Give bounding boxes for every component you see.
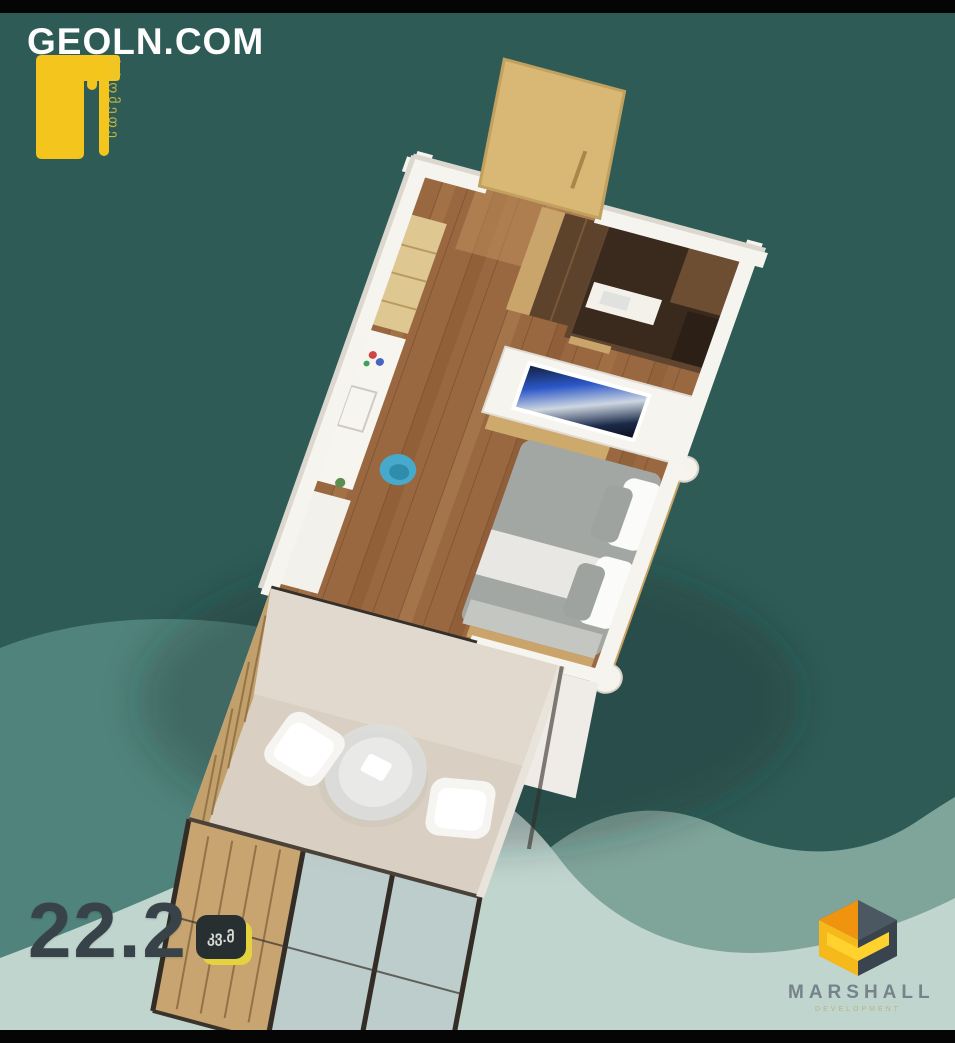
promo-image: GEOLN.COM პრომეთე 22.2 კვ.მ MARSHALL bbox=[0, 0, 955, 1043]
developer-name: MARSHALL bbox=[788, 982, 928, 1004]
developer-tagline: DEVELOPMENT bbox=[788, 1006, 928, 1013]
project-name-vertical-georgian: პრომეთე bbox=[105, 58, 122, 141]
project-logo: პრომეთე bbox=[36, 55, 206, 185]
teal-canvas: GEOLN.COM პრომეთე 22.2 კვ.მ MARSHALL bbox=[0, 13, 955, 1030]
developer-logo-block: MARSHALL DEVELOPMENT bbox=[788, 898, 928, 1013]
balcony-lounge-chair-right bbox=[423, 776, 497, 840]
area-block: 22.2 კვ.მ bbox=[28, 891, 246, 969]
area-unit-label: კვ.მ bbox=[207, 928, 234, 946]
developer-cube-icon bbox=[813, 898, 903, 978]
area-value: 22.2 bbox=[28, 891, 188, 969]
area-unit-badge: კვ.მ bbox=[196, 915, 246, 959]
